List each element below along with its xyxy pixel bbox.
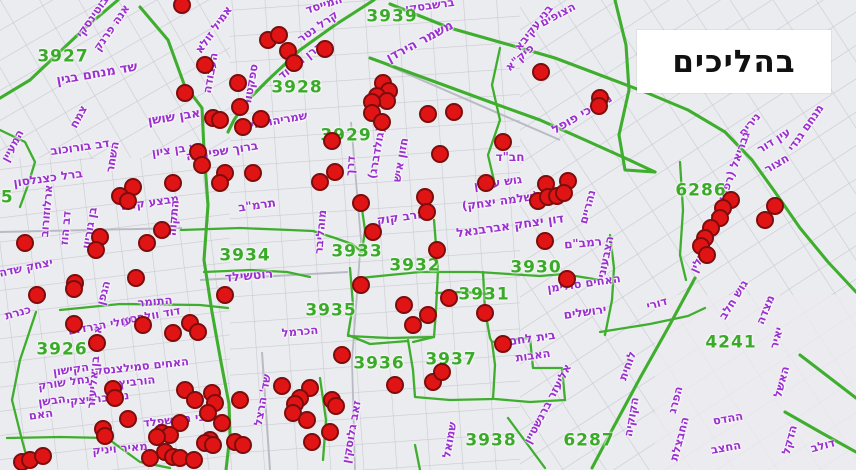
case-marker[interactable] <box>213 414 231 432</box>
case-marker[interactable] <box>476 304 494 322</box>
case-marker[interactable] <box>386 376 404 394</box>
case-marker[interactable] <box>106 389 124 407</box>
case-marker[interactable] <box>273 377 291 395</box>
case-marker[interactable] <box>153 221 171 239</box>
case-marker[interactable] <box>216 286 234 304</box>
case-marker[interactable] <box>532 63 550 81</box>
case-marker[interactable] <box>119 410 137 428</box>
case-marker[interactable] <box>333 346 351 364</box>
case-marker[interactable] <box>303 433 321 451</box>
case-marker[interactable] <box>494 335 512 353</box>
case-marker[interactable] <box>96 427 114 445</box>
case-marker[interactable] <box>298 411 316 429</box>
case-marker[interactable] <box>244 164 262 182</box>
case-marker[interactable] <box>756 211 774 229</box>
case-marker[interactable] <box>28 286 46 304</box>
case-marker[interactable] <box>234 436 252 454</box>
case-marker[interactable] <box>285 54 303 72</box>
case-marker[interactable] <box>440 289 458 307</box>
case-marker[interactable] <box>231 98 249 116</box>
case-marker[interactable] <box>234 118 252 136</box>
case-marker[interactable] <box>326 163 344 181</box>
case-marker[interactable] <box>16 234 34 252</box>
case-marker[interactable] <box>164 324 182 342</box>
case-marker[interactable] <box>428 241 446 259</box>
map-canvas[interactable]: שד מנחם בגיןאבן שושןש בן ציוןברוך שפינוז… <box>0 0 856 470</box>
case-marker[interactable] <box>352 276 370 294</box>
status-title-box: בהליכים <box>637 30 831 93</box>
case-marker[interactable] <box>211 174 229 192</box>
case-marker[interactable] <box>404 316 422 334</box>
case-marker[interactable] <box>418 203 436 221</box>
case-marker[interactable] <box>445 103 463 121</box>
case-marker[interactable] <box>231 391 249 409</box>
case-marker[interactable] <box>211 111 229 129</box>
case-marker[interactable] <box>698 246 716 264</box>
case-marker[interactable] <box>185 451 203 469</box>
case-marker[interactable] <box>204 436 222 454</box>
case-marker[interactable] <box>431 145 449 163</box>
case-marker[interactable] <box>419 306 437 324</box>
case-marker[interactable] <box>34 447 52 465</box>
case-marker[interactable] <box>196 56 214 74</box>
case-marker[interactable] <box>373 113 391 131</box>
case-marker[interactable] <box>138 234 156 252</box>
case-marker[interactable] <box>311 173 329 191</box>
case-marker[interactable] <box>176 84 194 102</box>
case-marker[interactable] <box>555 184 573 202</box>
case-marker[interactable] <box>65 315 83 333</box>
case-marker[interactable] <box>88 334 106 352</box>
case-marker[interactable] <box>433 363 451 381</box>
case-marker[interactable] <box>316 40 334 58</box>
case-marker[interactable] <box>252 110 270 128</box>
status-title-text: בהליכים <box>672 44 795 80</box>
case-marker[interactable] <box>134 316 152 334</box>
case-marker[interactable] <box>323 132 341 150</box>
case-marker[interactable] <box>229 74 247 92</box>
case-marker[interactable] <box>477 174 495 192</box>
case-marker[interactable] <box>558 270 576 288</box>
case-marker[interactable] <box>189 323 207 341</box>
case-marker[interactable] <box>87 241 105 259</box>
case-marker[interactable] <box>119 192 137 210</box>
case-marker[interactable] <box>536 232 554 250</box>
case-marker[interactable] <box>327 397 345 415</box>
case-marker[interactable] <box>65 280 83 298</box>
case-marker[interactable] <box>395 296 413 314</box>
case-marker[interactable] <box>321 423 339 441</box>
case-marker[interactable] <box>494 133 512 151</box>
case-marker[interactable] <box>352 194 370 212</box>
case-marker[interactable] <box>193 156 211 174</box>
case-marker[interactable] <box>590 97 608 115</box>
case-marker[interactable] <box>127 269 145 287</box>
case-marker[interactable] <box>164 174 182 192</box>
case-marker[interactable] <box>364 223 382 241</box>
case-marker[interactable] <box>419 105 437 123</box>
